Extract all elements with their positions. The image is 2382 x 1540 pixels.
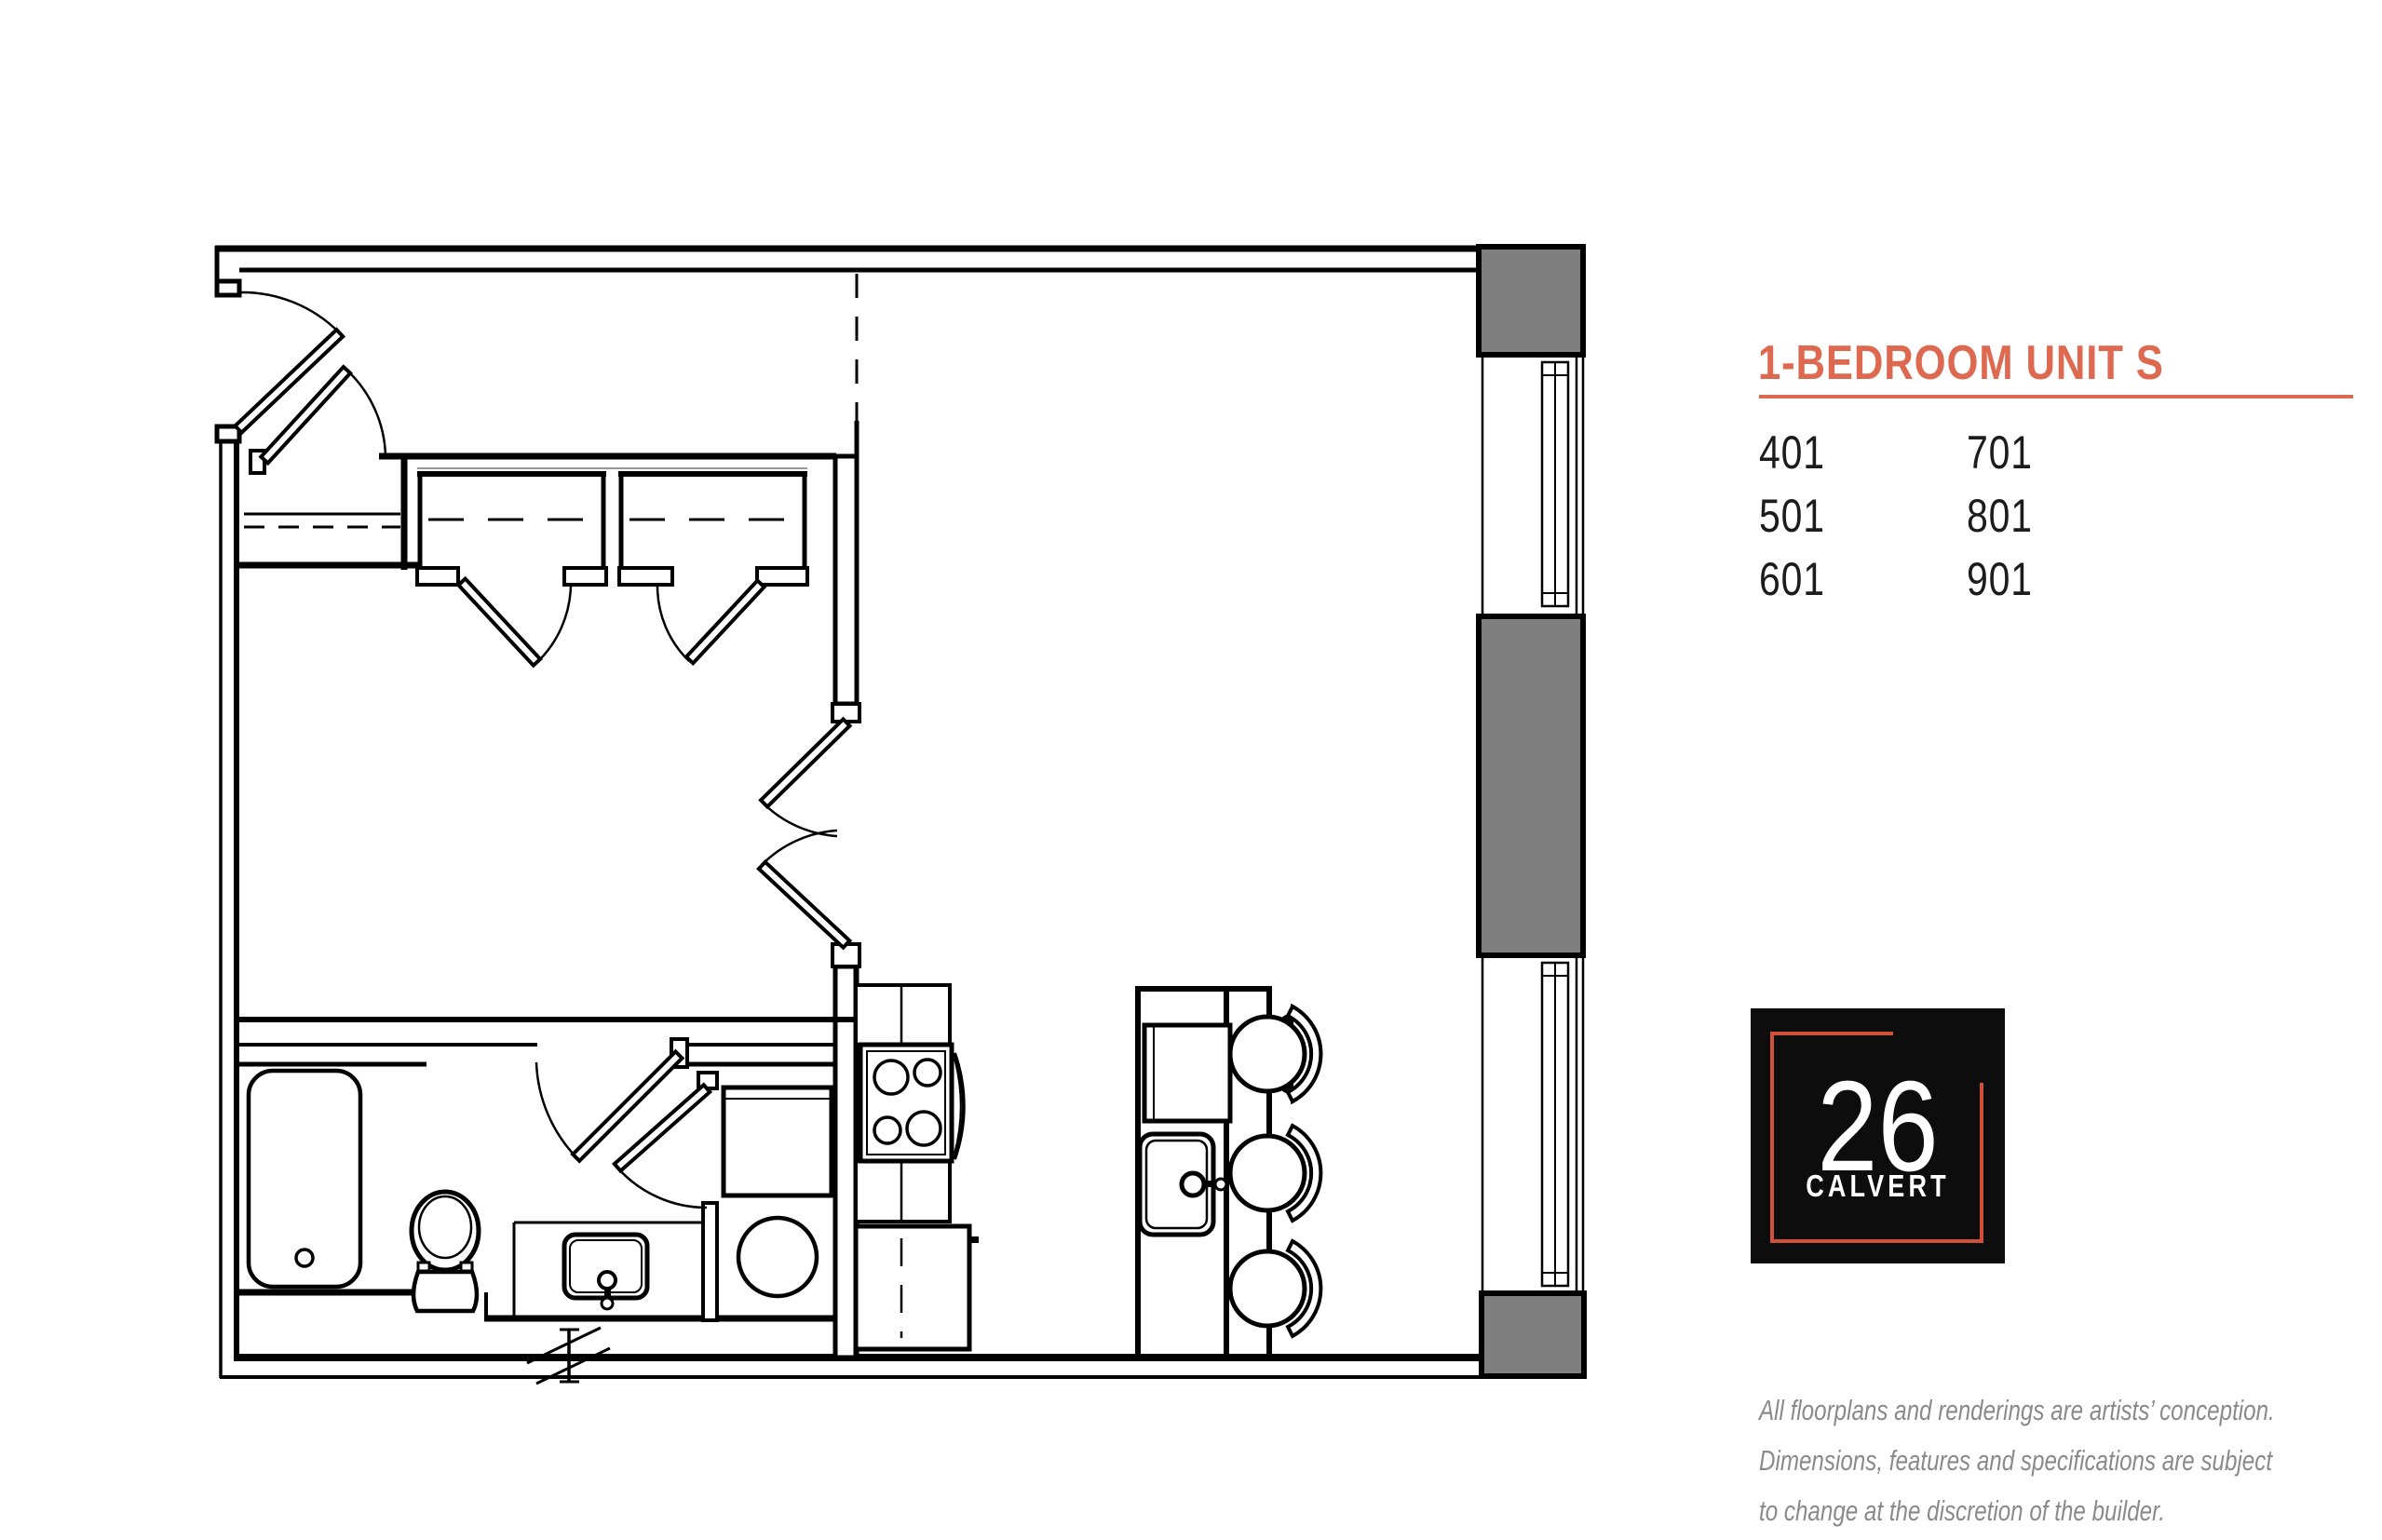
disclaimer-line: to change at the discretion of the build… (1759, 1486, 2275, 1536)
washer (724, 1087, 832, 1196)
unit-number: 601 (1759, 547, 1929, 611)
refrigerator (856, 1226, 979, 1349)
column-block (1479, 247, 1583, 355)
vanity-sink (514, 1223, 703, 1318)
closet-left-door (458, 579, 571, 666)
disclaimer-line: Dimensions, features and specifications … (1759, 1436, 2275, 1486)
unit-number: 801 (1967, 484, 2033, 547)
closet-right (618, 471, 807, 585)
toilet (412, 1192, 479, 1311)
entry-door (236, 292, 344, 433)
floorplan-drawing (0, 0, 2382, 1540)
window (1482, 355, 1577, 616)
bar-stools (1230, 1006, 1320, 1336)
bathroom-door (536, 1039, 687, 1161)
logo-name: CALVERT (1774, 1169, 1983, 1204)
unit-number-list: 401 501 601 701 801 901 (1759, 421, 2047, 611)
window (1482, 955, 1577, 1293)
dishwasher (1144, 1025, 1230, 1121)
disclaimer-line: All floorplans and renderings are artist… (1759, 1385, 2275, 1436)
page: 1-BEDROOM UNIT S 401 501 601 701 801 901… (0, 0, 2382, 1540)
entry-jamb (217, 281, 239, 295)
page-title: 1-BEDROOM UNIT S (1758, 335, 2164, 391)
unit-number: 401 (1759, 421, 1929, 484)
closet-left (417, 468, 807, 585)
unit-number: 701 (1967, 421, 2033, 484)
unit-number: 501 (1759, 484, 1929, 547)
bathtub (249, 1071, 360, 1287)
entry-closet (244, 514, 400, 527)
26-calvert-logo: 26 CALVERT (1751, 1008, 2005, 1263)
title-underline (1759, 395, 2353, 399)
column-block (1479, 616, 1583, 955)
column-block (1482, 1293, 1584, 1376)
stove (860, 1045, 964, 1161)
closet-right-door (657, 581, 765, 664)
dryer (738, 1218, 817, 1296)
bedroom-double-doors (759, 704, 859, 966)
disclaimer: All floorplans and renderings are artist… (1759, 1385, 2382, 1536)
unit-number: 901 (1967, 547, 2033, 611)
island-sink (1140, 1134, 1226, 1235)
window-wall (1479, 247, 1584, 1376)
